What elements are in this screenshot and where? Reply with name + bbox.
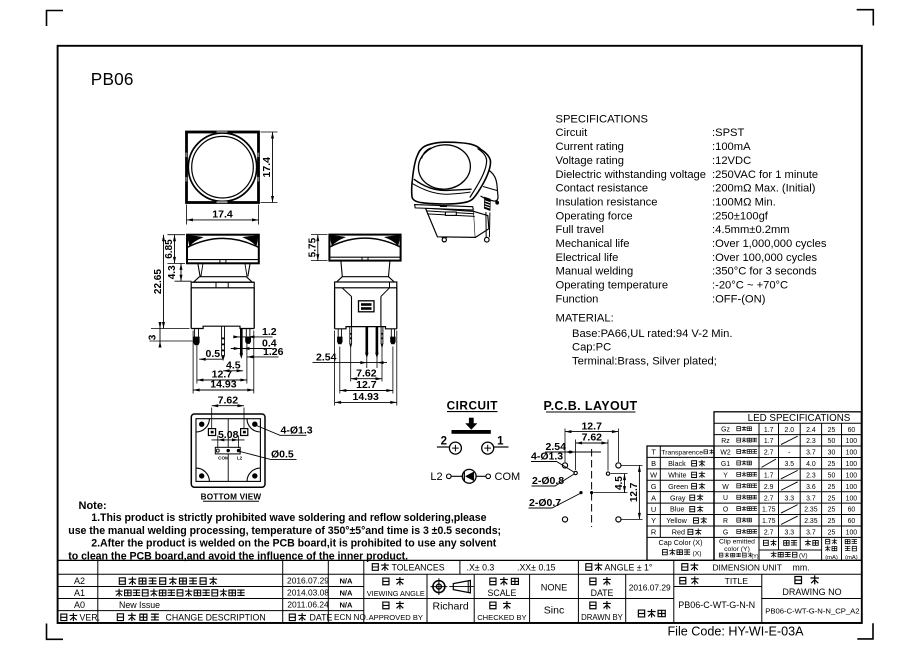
svg-text:2.0: 2.0 xyxy=(785,427,795,434)
svg-text:U: U xyxy=(723,495,728,502)
svg-text:7.62: 7.62 xyxy=(218,394,239,406)
svg-text:ANGLE ± 1°: ANGLE ± 1° xyxy=(605,562,653,572)
svg-text:Transparence: Transparence xyxy=(661,449,703,456)
svg-text:Ø0.5: Ø0.5 xyxy=(271,449,294,461)
svg-text:Insulation resistance: Insulation resistance xyxy=(556,196,658,208)
svg-text::SPST: :SPST xyxy=(712,127,744,139)
svg-text:3.7: 3.7 xyxy=(806,495,816,502)
svg-text:PB06: PB06 xyxy=(91,69,134,89)
svg-text::250±100gf: :250±100gf xyxy=(712,210,769,222)
svg-text:17.4: 17.4 xyxy=(261,157,273,178)
svg-text:12.7: 12.7 xyxy=(356,379,377,391)
svg-text:Blue: Blue xyxy=(670,505,684,514)
svg-text:Base:PA66,UL rated:94 V-2 Min.: Base:PA66,UL rated:94 V-2 Min. xyxy=(572,328,732,340)
svg-text:14.93: 14.93 xyxy=(353,391,379,403)
svg-text:MATERIAL:: MATERIAL: xyxy=(556,313,614,325)
svg-text:25: 25 xyxy=(828,461,836,468)
svg-text:A1: A1 xyxy=(74,588,85,598)
svg-text:-: - xyxy=(788,450,790,457)
svg-text:Dielectric withstanding voltag: Dielectric withstanding voltage xyxy=(556,169,707,181)
svg-text:6.85: 6.85 xyxy=(164,239,175,259)
svg-text:25: 25 xyxy=(828,484,836,491)
svg-text:A2: A2 xyxy=(74,576,85,586)
svg-text::200mΩ Max. (Initial): :200mΩ Max. (Initial) xyxy=(712,183,816,195)
svg-text:G: G xyxy=(651,482,657,491)
svg-text:CIRCUIT: CIRCUIT xyxy=(447,399,499,413)
svg-text:NONE: NONE xyxy=(541,583,568,593)
svg-text::Over 1,000,000 cycles: :Over 1,000,000 cycles xyxy=(712,238,827,250)
svg-text:A: A xyxy=(651,493,656,502)
svg-text::12VDC: :12VDC xyxy=(712,155,751,167)
svg-text:2.54: 2.54 xyxy=(316,351,337,363)
svg-text:50: 50 xyxy=(828,472,836,479)
svg-text:2.3: 2.3 xyxy=(806,438,816,445)
svg-text:COM: COM xyxy=(218,455,229,460)
svg-text:P.C.B. LAYOUT: P.C.B. LAYOUT xyxy=(543,399,637,413)
svg-text:T: T xyxy=(651,448,656,457)
svg-text:mm.: mm. xyxy=(793,562,810,572)
svg-text:VIEWING ANGLE: VIEWING ANGLE xyxy=(367,589,425,598)
svg-text:Circuit: Circuit xyxy=(556,127,589,139)
svg-text:3.6: 3.6 xyxy=(806,484,816,491)
svg-text:BOTTOM VIEW: BOTTOM VIEW xyxy=(201,493,262,502)
svg-text:12.7: 12.7 xyxy=(629,482,640,502)
svg-text:B: B xyxy=(651,459,656,468)
svg-text:A0: A0 xyxy=(74,600,85,610)
svg-text:.X± 0.3: .X± 0.3 xyxy=(467,562,495,572)
svg-text::250VAC for 1 minute: :250VAC for 1 minute xyxy=(712,169,818,181)
svg-text:DRAWING NO: DRAWING NO xyxy=(782,587,841,597)
svg-text::100MΩ Min.: :100MΩ Min. xyxy=(712,196,776,208)
svg-text:Operating force: Operating force xyxy=(556,210,633,222)
svg-text:1.26: 1.26 xyxy=(263,346,284,358)
svg-text:3.3: 3.3 xyxy=(785,495,795,502)
svg-text::100mA: :100mA xyxy=(712,141,751,153)
svg-text:Mechanical life: Mechanical life xyxy=(556,238,630,250)
svg-text:Note:: Note: xyxy=(79,500,107,512)
svg-text:Voltage rating: Voltage rating xyxy=(556,155,624,167)
svg-text:Sinc: Sinc xyxy=(544,605,564,617)
svg-text::OFF-(ON): :OFF-(ON) xyxy=(712,293,766,305)
svg-text:2.4: 2.4 xyxy=(806,427,816,434)
svg-text:Cap Color (X): Cap Color (X) xyxy=(659,538,703,547)
svg-text:3.3: 3.3 xyxy=(785,530,795,537)
svg-text:R: R xyxy=(723,518,728,525)
svg-text:2011.06.24: 2011.06.24 xyxy=(287,600,329,610)
svg-text:12.7: 12.7 xyxy=(581,420,602,432)
svg-text:25: 25 xyxy=(828,518,836,525)
svg-text:4.5: 4.5 xyxy=(614,476,625,490)
svg-text:W: W xyxy=(722,484,729,491)
svg-text:4-Ø1.3: 4-Ø1.3 xyxy=(531,451,563,463)
svg-text:color (Y): color (Y) xyxy=(724,546,750,553)
svg-text:G1: G1 xyxy=(721,461,730,468)
svg-text:Richard: Richard xyxy=(433,601,469,613)
svg-text:2.7: 2.7 xyxy=(764,530,774,537)
svg-text:2-Ø0.8: 2-Ø0.8 xyxy=(532,475,564,487)
svg-text:Y: Y xyxy=(651,516,656,525)
svg-text:100: 100 xyxy=(846,450,858,457)
svg-text:ECN NO.: ECN NO. xyxy=(334,613,368,622)
svg-text:1.7: 1.7 xyxy=(764,472,774,479)
svg-text:N/A: N/A xyxy=(339,588,353,597)
svg-text:2.After the product is welded: 2.After the product is welded on the PCB… xyxy=(91,538,497,550)
svg-text:2016.07.29: 2016.07.29 xyxy=(629,583,671,593)
svg-text:1.This product is strictly pro: 1.This product is strictly prohibited wa… xyxy=(91,512,486,524)
svg-text:Y: Y xyxy=(723,472,728,479)
svg-text:W2: W2 xyxy=(720,450,731,457)
svg-text:N/A: N/A xyxy=(339,576,353,585)
svg-text:.XX± 0.15: .XX± 0.15 xyxy=(517,562,556,572)
svg-text:(X): (X) xyxy=(693,551,702,558)
svg-text:3.7: 3.7 xyxy=(806,450,816,457)
svg-text:CHANGE DESCRIPTION: CHANGE DESCRIPTION xyxy=(166,612,266,622)
svg-text:Green: Green xyxy=(668,482,688,491)
svg-text:25: 25 xyxy=(828,427,836,434)
svg-text:Yellow: Yellow xyxy=(666,516,687,525)
svg-text::4.5mm±0.2mm: :4.5mm±0.2mm xyxy=(712,224,790,236)
svg-text:25: 25 xyxy=(828,507,836,514)
svg-text:100: 100 xyxy=(846,495,858,502)
svg-text:Clip emitted: Clip emitted xyxy=(719,539,755,546)
svg-text:14.93: 14.93 xyxy=(210,379,236,391)
svg-text:5.08: 5.08 xyxy=(218,429,239,441)
svg-text:4-Ø1.3: 4-Ø1.3 xyxy=(281,424,313,436)
svg-text:1: 1 xyxy=(497,435,504,447)
svg-text::Over 100,000 cycles: :Over 100,000 cycles xyxy=(712,252,817,264)
svg-text:TOLEANCES: TOLEANCES xyxy=(392,562,445,572)
svg-text:Cap:PC: Cap:PC xyxy=(572,342,611,354)
svg-text:N/A: N/A xyxy=(339,600,353,609)
svg-text:2.9: 2.9 xyxy=(764,484,774,491)
svg-text:Terminal:Brass, Silver plated;: Terminal:Brass, Silver plated; xyxy=(572,356,717,368)
svg-text:Electrical life: Electrical life xyxy=(556,252,619,264)
svg-text:Operating temperature: Operating temperature xyxy=(556,280,669,292)
svg-text:CHECKED BY: CHECKED BY xyxy=(477,613,526,622)
svg-text:LED SPECIFICATIONS: LED SPECIFICATIONS xyxy=(748,413,851,424)
svg-text:Current rating: Current rating xyxy=(556,141,624,153)
svg-text:VER.: VER. xyxy=(80,612,101,622)
svg-text:0.5: 0.5 xyxy=(206,348,221,360)
svg-text:SPECIFICATIONS: SPECIFICATIONS xyxy=(556,113,648,125)
svg-text:White: White xyxy=(668,470,686,479)
svg-text:SCALE: SCALE xyxy=(487,588,516,598)
svg-text:100: 100 xyxy=(846,438,858,445)
svg-text:100: 100 xyxy=(846,461,858,468)
svg-text:3.7: 3.7 xyxy=(806,530,816,537)
svg-text:50: 50 xyxy=(828,438,836,445)
svg-text:3.5: 3.5 xyxy=(785,461,795,468)
svg-text:100: 100 xyxy=(846,530,858,537)
svg-text:Function: Function xyxy=(556,293,599,305)
svg-text:2.3: 2.3 xyxy=(806,472,816,479)
svg-text:2.7: 2.7 xyxy=(764,450,774,457)
svg-text:3: 3 xyxy=(148,334,159,340)
svg-text:Rz: Rz xyxy=(721,438,730,445)
svg-text:W: W xyxy=(650,471,657,480)
svg-text:2: 2 xyxy=(441,435,447,447)
svg-text:use the manual welding process: use the manual welding processing, tempe… xyxy=(68,525,501,537)
svg-text::-20°C ~ +70°C: :-20°C ~ +70°C xyxy=(712,280,788,292)
svg-text:G: G xyxy=(723,529,728,536)
svg-text:DRAWN BY: DRAWN BY xyxy=(581,613,624,622)
svg-text:25: 25 xyxy=(828,495,836,502)
svg-text:2016.07.29: 2016.07.29 xyxy=(287,576,329,586)
svg-text:60: 60 xyxy=(848,427,856,434)
svg-text:4.3: 4.3 xyxy=(167,265,178,279)
svg-text:DATE: DATE xyxy=(591,588,614,598)
svg-text:DATE: DATE xyxy=(310,612,333,622)
svg-text:5.75: 5.75 xyxy=(307,237,318,257)
svg-text:30: 30 xyxy=(828,450,836,457)
svg-text:L2: L2 xyxy=(430,471,442,483)
svg-text:New Issue: New Issue xyxy=(119,600,160,610)
svg-text:2.7: 2.7 xyxy=(764,495,774,502)
svg-text:Gray: Gray xyxy=(670,493,686,502)
svg-text:TITLE: TITLE xyxy=(725,576,749,586)
svg-text:(V): (V) xyxy=(799,553,808,560)
svg-text:(Y): (Y) xyxy=(752,554,759,560)
svg-text:2.35: 2.35 xyxy=(804,507,818,514)
svg-text::350°C for 3 seconds: :350°C for 3 seconds xyxy=(712,266,817,278)
svg-text:100: 100 xyxy=(846,484,858,491)
svg-text:1.7: 1.7 xyxy=(764,427,774,434)
svg-text:Black: Black xyxy=(668,459,686,468)
svg-text:2-Ø0.7: 2-Ø0.7 xyxy=(529,497,561,509)
svg-text:PB06-C-WT-G-N-N: PB06-C-WT-G-N-N xyxy=(678,600,755,610)
svg-text:Red: Red xyxy=(672,528,685,537)
svg-text:R: R xyxy=(651,528,656,537)
svg-text:60: 60 xyxy=(848,507,856,514)
svg-text:Manual welding: Manual welding xyxy=(556,266,634,278)
svg-text:O: O xyxy=(723,507,729,514)
svg-text:2.35: 2.35 xyxy=(804,518,818,525)
svg-text:1.75: 1.75 xyxy=(762,507,776,514)
svg-text:4.0: 4.0 xyxy=(806,461,816,468)
svg-text:2014.03.08: 2014.03.08 xyxy=(287,588,329,598)
svg-text:U: U xyxy=(651,505,656,514)
svg-text:7.62: 7.62 xyxy=(356,367,377,379)
svg-text:17.4: 17.4 xyxy=(212,209,233,221)
svg-text:25: 25 xyxy=(828,530,836,537)
svg-text:22.65: 22.65 xyxy=(153,269,164,294)
svg-text:DIMENSION UNIT: DIMENSION UNIT xyxy=(713,562,782,572)
svg-text:1.75: 1.75 xyxy=(762,518,776,525)
svg-text:APPROVED BY: APPROVED BY xyxy=(369,613,423,622)
svg-text:1.2: 1.2 xyxy=(262,326,277,338)
svg-text:100: 100 xyxy=(846,472,858,479)
svg-text:1.7: 1.7 xyxy=(764,438,774,445)
svg-text:L2: L2 xyxy=(237,455,243,460)
svg-text:60: 60 xyxy=(848,518,856,525)
svg-text:7.62: 7.62 xyxy=(582,432,603,444)
svg-text:Full travel: Full travel xyxy=(556,224,605,236)
svg-text:Gz: Gz xyxy=(721,427,730,434)
svg-text:File Code: HY-WI-E-03A: File Code: HY-WI-E-03A xyxy=(667,625,804,639)
svg-text:Contact resistance: Contact resistance xyxy=(556,183,649,195)
svg-text:COM: COM xyxy=(495,471,521,483)
svg-text:PB06-C-WT-G-N-N_CP_A2: PB06-C-WT-G-N-N_CP_A2 xyxy=(765,606,859,615)
